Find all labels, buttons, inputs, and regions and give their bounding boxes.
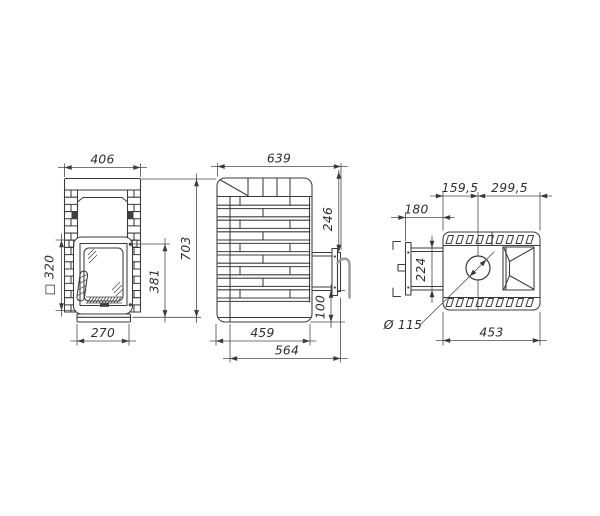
front-door-box — [74, 237, 133, 314]
top-handle-nub — [398, 265, 406, 272]
front-base — [77, 314, 131, 322]
dim-front-base-width: 270 — [91, 326, 115, 340]
front-view — [65, 179, 141, 323]
top-flange-corner-lower — [393, 288, 401, 297]
dim-front-opening: □ 320 — [43, 255, 57, 296]
dim-side-total-depth: 564 — [275, 344, 299, 358]
side-door-tunnel — [312, 253, 332, 291]
dim-side-body-depth: 459 — [250, 326, 274, 340]
front-cavity-outline — [78, 198, 128, 238]
technical-drawing-canvas: 406 □ 320 381 270 703 639 246 100 459 56… — [0, 0, 600, 516]
dim-front-door-height: 381 — [148, 269, 162, 293]
dim-front-total-height: 703 — [179, 236, 193, 260]
dim-side-depth: 639 — [267, 152, 291, 166]
dim-side-flange-bottom: 100 — [314, 295, 328, 319]
dim-top-tunnel-width: 224 — [414, 257, 428, 281]
dim-top-body-width: 453 — [479, 326, 503, 340]
dim-top-chimney-right: 299,5 — [491, 181, 528, 195]
front-top-cap — [65, 179, 141, 191]
side-body — [217, 178, 312, 322]
side-view — [217, 178, 350, 322]
ref-dot-bottom — [129, 303, 132, 306]
top-flange-corner-upper — [393, 242, 401, 250]
dim-front-width: 406 — [90, 153, 114, 167]
side-door-lip — [338, 253, 341, 292]
front-latch — [100, 303, 109, 307]
stove-dimension-drawing: 406 □ 320 381 270 703 639 246 100 459 56… — [0, 0, 600, 516]
ref-dot-top — [129, 243, 132, 246]
dim-top-chimney-diameter: Ø 115 — [383, 318, 423, 332]
dim-side-flange-top: 246 — [321, 207, 335, 231]
dim-top-tunnel-depth: 180 — [404, 203, 428, 217]
dim-top-chimney-left: 159,5 — [442, 181, 479, 195]
